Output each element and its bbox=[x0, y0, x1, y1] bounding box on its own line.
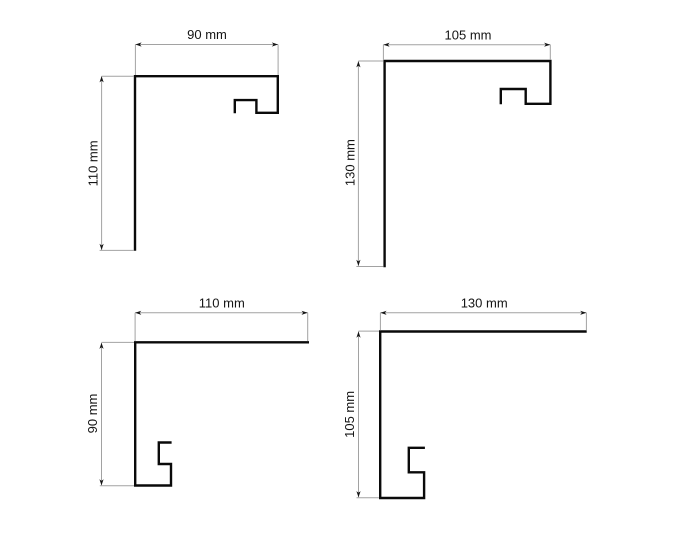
svg-text:105 mm: 105 mm bbox=[445, 28, 492, 43]
svg-text:130 mm: 130 mm bbox=[461, 296, 508, 311]
svg-text:110 mm: 110 mm bbox=[85, 140, 100, 186]
svg-text:105 mm: 105 mm bbox=[342, 391, 357, 438]
svg-text:90 mm: 90 mm bbox=[187, 27, 227, 42]
svg-text:90 mm: 90 mm bbox=[85, 394, 100, 434]
svg-text:130 mm: 130 mm bbox=[343, 139, 358, 186]
svg-text:110 mm: 110 mm bbox=[199, 296, 245, 311]
